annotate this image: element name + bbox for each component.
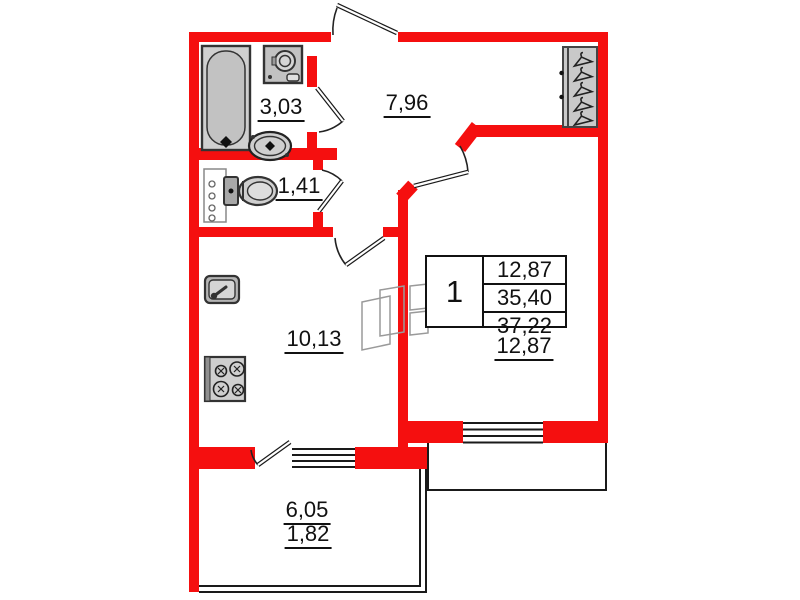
bathroom-door-icon: [317, 88, 343, 132]
living-room-door-icon: [414, 146, 468, 186]
kitchen-door-icon: [335, 238, 384, 265]
area-label-hallway: 7,96: [384, 92, 431, 118]
wardrobe-hangers-icon: [559, 47, 597, 127]
summary-total-area: 37,22: [484, 313, 565, 339]
summary-apartment-area: 35,40: [484, 285, 565, 313]
bathtub-icon: [202, 46, 250, 150]
stove-icon: [205, 357, 245, 401]
room-count: 1: [427, 257, 484, 326]
apartment-summary-table: 1 12,87 35,40 37,22: [425, 255, 567, 328]
plumbing-riser-icon: [204, 169, 226, 222]
washing-machine-icon: [264, 46, 302, 83]
open-balcony-outline: [428, 443, 606, 490]
area-label-balcony-reduced: 1,82: [285, 523, 332, 549]
kitchen-sink-icon: [205, 276, 239, 303]
area-label-kitchen: 10,13: [284, 328, 343, 354]
floor-plan: 3,03 7,96 1,41 10,13 12,87 6,05 1,82 1 1…: [0, 0, 800, 600]
summary-living-area: 12,87: [484, 257, 565, 285]
summary-values: 12,87 35,40 37,22: [484, 257, 565, 326]
entrance-door-icon: [333, 5, 397, 35]
washbasin-icon: [249, 132, 291, 160]
balcony-door-icon: [251, 442, 290, 465]
toilet-icon: [224, 177, 277, 205]
window-kitchen-balcony: [292, 449, 355, 467]
window-living-room: [463, 423, 543, 443]
area-label-wc: 1,41: [276, 175, 323, 201]
ventilation-shaft-icon: [362, 284, 428, 350]
wc-door-icon: [319, 170, 342, 211]
area-label-bathroom: 3,03: [258, 96, 305, 122]
